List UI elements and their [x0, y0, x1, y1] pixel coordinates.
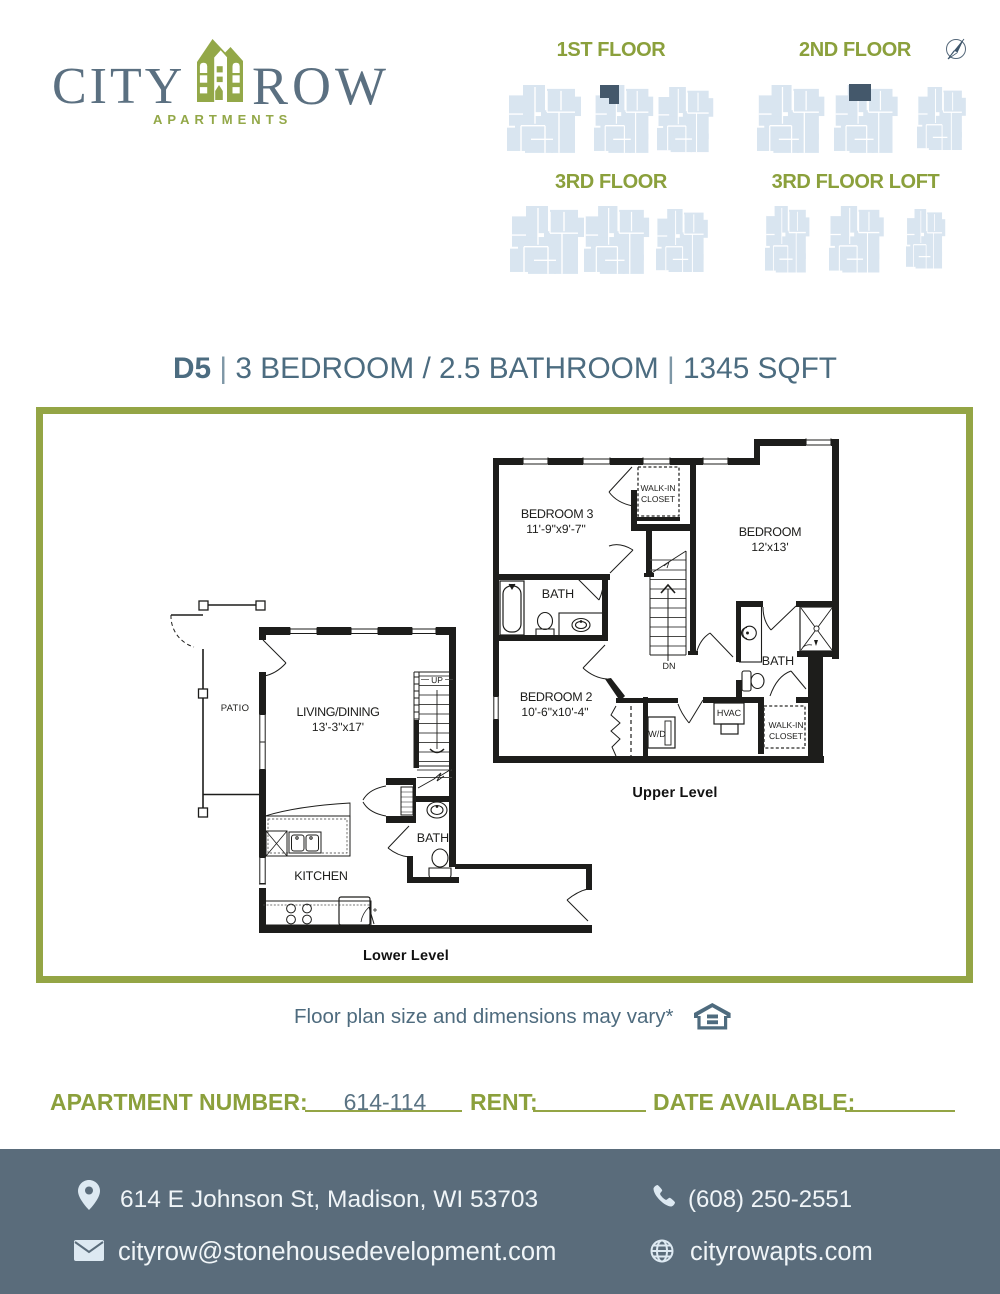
svg-text:BEDROOM 3: BEDROOM 3 [521, 507, 594, 521]
svg-text:HVAC: HVAC [717, 708, 742, 718]
svg-text:PATIO: PATIO [221, 703, 250, 714]
svg-text:W/D: W/D [648, 729, 666, 739]
svg-text:KITCHEN: KITCHEN [294, 869, 348, 883]
svg-text:10'-6"x10'-4": 10'-6"x10'-4" [521, 705, 588, 719]
svg-text:Lower Level: Lower Level [363, 948, 449, 964]
svg-text:DN: DN [663, 661, 676, 671]
svg-text:12'x13': 12'x13' [751, 540, 788, 554]
svg-text:WALK-IN: WALK-IN [640, 483, 675, 493]
svg-text:LIVING/DINING: LIVING/DINING [296, 705, 379, 719]
svg-text:11'-9"x9'-7": 11'-9"x9'-7" [526, 522, 586, 536]
svg-text:13'-3"x17': 13'-3"x17' [312, 720, 364, 734]
svg-text:BATH: BATH [417, 831, 449, 845]
svg-text:BATH: BATH [542, 587, 574, 601]
svg-text:BATH: BATH [762, 654, 794, 668]
svg-text:CLOSET: CLOSET [769, 731, 803, 741]
svg-text:BEDROOM 2: BEDROOM 2 [520, 690, 593, 704]
svg-text:UP: UP [431, 675, 443, 685]
svg-text:CLOSET: CLOSET [641, 494, 675, 504]
svg-text:Upper Level: Upper Level [632, 785, 717, 801]
svg-text:WALK-IN: WALK-IN [768, 720, 803, 730]
svg-text:BEDROOM: BEDROOM [739, 525, 802, 539]
